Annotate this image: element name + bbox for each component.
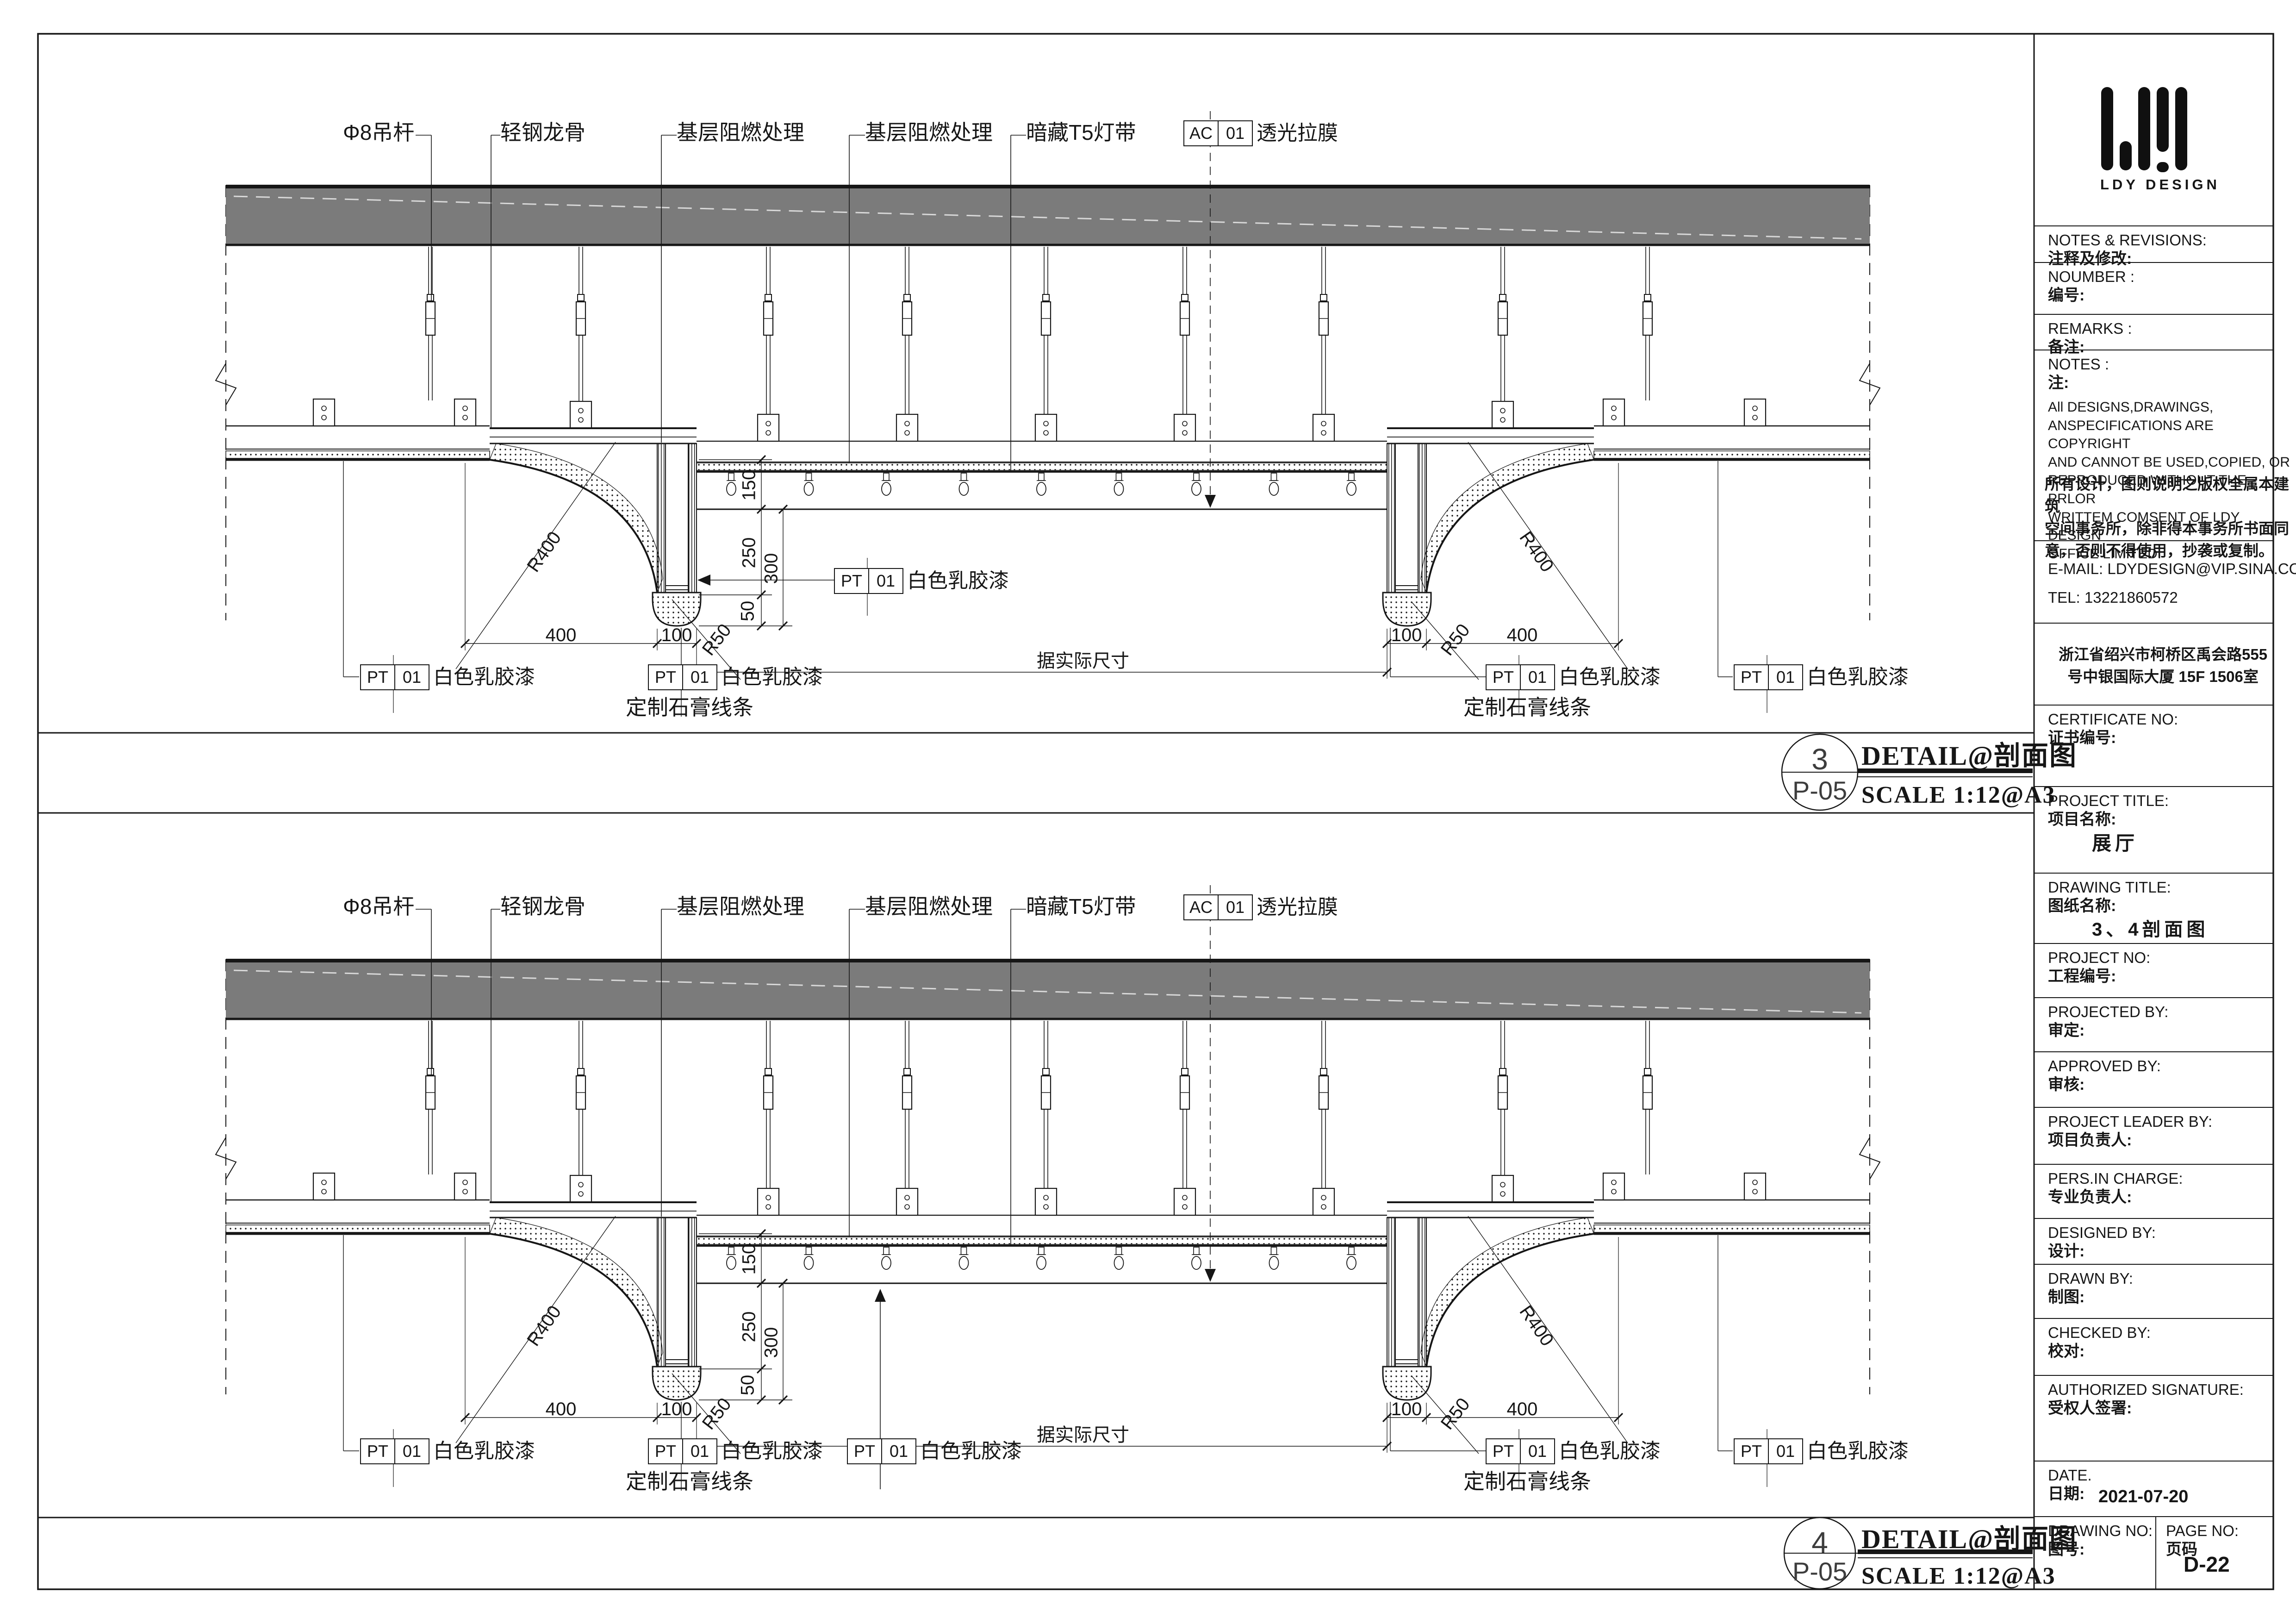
tb-row-15-cn: 制图:: [2048, 1289, 2084, 1305]
tb-row-19-cn: 图号:: [2048, 1542, 2084, 1557]
detail-3-bracket: [758, 414, 779, 441]
detail-3-t5-lamp: [727, 482, 736, 495]
tb-row-12-cn: 项目负责人:: [2048, 1132, 2132, 1148]
detail-4-slab: [226, 959, 1870, 1019]
detail-4-membrane-tag-code: AC: [1183, 894, 1219, 920]
detail-3-baseboard: [226, 451, 490, 458]
detail-4-t5-lamp: [961, 1247, 967, 1255]
detail-3-paint-tag-2-code: PT: [1486, 664, 1521, 690]
detail-4-bulb: [1383, 1367, 1431, 1400]
detail-4-bracket: [1321, 1195, 1326, 1200]
detail-3-dim-400: 400: [1507, 626, 1538, 644]
detail-3-bracket: [1500, 418, 1505, 422]
tb-row-17-en: AUTHORIZED SIGNATURE:: [2048, 1382, 2244, 1397]
detail-4-rod-nut: [578, 1068, 584, 1075]
detail-3-bracket: [1174, 414, 1195, 441]
detail-4-rod-nut: [1644, 1068, 1651, 1075]
detail-3-rod-nut: [1500, 294, 1506, 301]
detail-3-paint-tag-mid-label: 白色乳胶漆: [907, 571, 1009, 591]
detail-3-trough-wall: [1418, 443, 1426, 593]
tb-row-8-cn: 图纸名称:: [2048, 898, 2116, 914]
detail-4-t5-lamp: [728, 1247, 734, 1255]
detail-4-bracket: [896, 1188, 918, 1215]
detail-4-bracket: [1044, 1205, 1048, 1209]
detail-3-trough-wall: [657, 443, 666, 593]
detail-4-bracket: [570, 1175, 591, 1202]
detail-3-bracket: [1603, 399, 1624, 426]
detail-3-t5-lamp: [961, 473, 967, 481]
detail-4-t5-lamp: [884, 1247, 889, 1255]
detail-3-t5-lamp: [1269, 482, 1279, 495]
detail-4-t5-lamp: [806, 1247, 812, 1255]
detail-4-bracket: [579, 1192, 583, 1196]
detail-4-rod-nut: [1043, 1068, 1049, 1075]
detail-3-label-3: 基层阻燃处理: [865, 122, 993, 143]
detail-3-bracket: [570, 401, 591, 428]
detail-4-dim-400: 400: [1507, 1400, 1538, 1418]
tb-row-9-en: PROJECT NO:: [2048, 950, 2150, 965]
detail-3-bracket: [1321, 431, 1326, 435]
detail-3-paint-tag-2-num: 01: [1521, 664, 1555, 690]
detail-3-bracket: [1035, 414, 1057, 441]
detail-3-paint-tag-1-code: PT: [648, 664, 683, 690]
tb-row-11-cn: 审核:: [2048, 1077, 2084, 1093]
detail-4-t5-lamp: [1347, 1256, 1356, 1269]
detail-4-baseboard: [226, 1225, 490, 1232]
detail-3-t5-lamp: [1037, 482, 1046, 495]
detail-3-bracket: [1753, 415, 1757, 420]
detail-3-moulding-label: 定制石膏线条: [626, 697, 753, 718]
detail-4-dim-span-note: 据实际尺寸: [1037, 1426, 1129, 1444]
detail-3-trough-wall: [1387, 443, 1395, 593]
detail-3-label-1: 轻钢龙骨: [500, 122, 585, 143]
tb-row-7-en: PROJECT TITLE:: [2048, 793, 2169, 808]
detail-4-paint-tag-4: PT01: [1734, 1438, 1803, 1464]
tb-row-14-en: DESIGNED BY:: [2048, 1225, 2156, 1240]
tb-row-19-right-en: PAGE NO:: [2166, 1523, 2239, 1538]
detail-3-t5-lamp: [1349, 473, 1354, 481]
detail-4-bracket: [1753, 1189, 1757, 1194]
detail-3-dim-50: 50: [738, 601, 757, 622]
detail-3-bracket: [1182, 421, 1187, 426]
detail-3-bracket: [905, 421, 909, 426]
detail-4-paint-tag-1-label: 白色乳胶漆: [721, 1441, 823, 1462]
detail-4-t5-lamp: [1269, 1256, 1279, 1269]
detail-4-title-number: 4: [1811, 1528, 1828, 1557]
detail-3-bracket: [1744, 399, 1766, 426]
detail-4-paint-tag-2-num: 01: [882, 1438, 916, 1464]
detail-4-bracket: [322, 1180, 326, 1185]
detail-4-trough-wall: [1418, 1218, 1426, 1367]
detail-3-paint-tag-3-label: 白色乳胶漆: [1807, 667, 1909, 687]
detail-4-paint-tag-4-num: 01: [1769, 1438, 1803, 1464]
drawing-sheet: Φ8吊杆轻钢龙骨基层阻燃处理基层阻燃处理暗藏T5灯带AC01透光拉膜PT01白色…: [0, 0, 2296, 1624]
detail-4-bracket: [1603, 1173, 1624, 1200]
detail-4-rod-nut: [1500, 1068, 1506, 1075]
detail-4-bracket: [766, 1205, 771, 1209]
detail-4-bracket: [905, 1205, 909, 1209]
tb-row-2-en: REMARKS :: [2048, 321, 2132, 336]
logo-bar: [2157, 87, 2169, 152]
detail-4-bracket: [1500, 1192, 1505, 1196]
detail-3-t5-lamp: [728, 473, 734, 481]
detail-4-bracket: [1035, 1188, 1057, 1215]
detail-3-bracket: [1044, 421, 1048, 426]
detail-4-trough-wall: [1387, 1218, 1395, 1367]
page-border: [38, 34, 2273, 1589]
detail-4-paint-tag-3-label: 白色乳胶漆: [1559, 1441, 1661, 1462]
logo-bar: [2175, 87, 2187, 170]
detail-3-paint-tag-0: PT01: [360, 664, 429, 690]
detail-4-bracket: [1612, 1189, 1616, 1194]
detail-4-membrane-tag: AC01: [1183, 894, 1253, 920]
detail-3-rod-nut: [427, 294, 434, 301]
detail-3-rod-nut: [1644, 294, 1651, 301]
detail-4-label-4: 暗藏T5灯带: [1026, 896, 1136, 917]
logo-bar: [2157, 162, 2169, 172]
tb-row-10-cn: 审定:: [2048, 1023, 2084, 1038]
detail-3-t5-lamp: [1116, 473, 1122, 481]
detail-3-dim-300: 300: [762, 553, 780, 584]
detail-4-t5-lamp: [1039, 1247, 1044, 1255]
detail-3-t5-lamp: [882, 482, 891, 495]
detail-4-bracket: [1313, 1188, 1334, 1215]
tb-row-19-page-no: D-22: [2184, 1554, 2230, 1575]
detail-3-title-number: 3: [1811, 744, 1828, 774]
detail-4-bracket: [1182, 1205, 1187, 1209]
detail-3-t5-lamp: [1114, 482, 1124, 495]
detail-3-bracket: [766, 421, 771, 426]
detail-4-bracket: [1753, 1180, 1757, 1185]
detail-4-label-2: 基层阻燃处理: [677, 896, 804, 917]
detail-4-t5-lamp: [1116, 1247, 1122, 1255]
tb-row-3-body-cn: 所有设计，图则说明之版权全属本建筑 空间事务所，除非得本事务所书面同 意，否则不…: [2045, 473, 2296, 562]
tb-row-8-value: 3、4剖面图: [2092, 920, 2209, 939]
tb-row-19-en: DRAWING NO:: [2048, 1523, 2153, 1538]
cad-linework: [0, 0, 2296, 1624]
detail-3-centre-board: [697, 463, 1387, 470]
detail-4-t5-lamp: [1194, 1247, 1199, 1255]
detail-3-t5-lamp: [959, 482, 969, 495]
detail-4-moulding-label: 定制石膏线条: [1463, 1471, 1591, 1492]
detail-4-paint-tag-0-num: 01: [395, 1438, 429, 1464]
tb-row-16-en: CHECKED BY:: [2048, 1325, 2151, 1340]
tb-row-1-cn: 编号:: [2048, 287, 2084, 303]
detail-4-paint-tag-0-code: PT: [360, 1438, 395, 1464]
detail-4-title-text: DETAIL@剖面图: [1861, 1526, 2077, 1553]
tb-row-7-value: 展厅: [2092, 834, 2138, 853]
detail-4-baseboard: [1594, 1225, 1870, 1232]
detail-4-bracket: [1044, 1195, 1048, 1200]
detail-4-bracket: [463, 1180, 467, 1185]
logo-bar: [2101, 87, 2113, 170]
detail-4-cove-hatch: [490, 1218, 663, 1367]
detail-4-t5-lamp: [1192, 1256, 1201, 1269]
detail-3-bracket: [322, 406, 326, 411]
detail-3-bracket: [1044, 431, 1048, 435]
detail-3-rod-nut: [578, 294, 584, 301]
detail-3-bracket: [454, 399, 476, 426]
detail-3-title-scale: SCALE 1:12@A3: [1861, 783, 2056, 807]
detail-4-bracket: [1492, 1175, 1513, 1202]
detail-3-membrane-tag: AC01: [1183, 120, 1253, 146]
detail-4-bracket: [1182, 1195, 1187, 1200]
detail-4-label-0: Φ8吊杆: [343, 896, 414, 917]
detail-3-rod-nut: [1320, 294, 1327, 301]
detail-3-t5-lamp: [1271, 473, 1277, 481]
tb-row-17-cn: 受权人签署:: [2048, 1400, 2132, 1416]
detail-3-label-0: Φ8吊杆: [343, 122, 414, 143]
detail-3-t5-lamp: [1192, 482, 1201, 495]
detail-3-bracket: [1500, 408, 1505, 413]
detail-3-paint-tag-0-code: PT: [360, 664, 395, 690]
detail-4-t5-lamp: [727, 1256, 736, 1269]
detail-3-dim-150: 150: [740, 470, 758, 501]
tb-row-1-en: NOUMBER :: [2048, 269, 2134, 284]
detail-3-bracket: [463, 415, 467, 420]
detail-3-bracket: [905, 431, 909, 435]
detail-4-bracket: [905, 1195, 909, 1200]
detail-3-cove-hatch: [1421, 443, 1594, 593]
detail-3-paint-tag-2-label: 白色乳胶漆: [1559, 667, 1661, 687]
tb-row-7-cn: 项目名称:: [2048, 812, 2116, 827]
detail-3-bulb: [1383, 593, 1431, 626]
detail-4-bracket: [454, 1173, 476, 1200]
tb-row-4-email: E-MAIL: LDYDESIGN@VIP.SINA.COM: [2048, 561, 2296, 576]
detail-3-rod-nut: [1043, 294, 1049, 301]
detail-4-title-scale: SCALE 1:12@A3: [1861, 1564, 2056, 1588]
detail-3-paint-tag-mid: PT01: [834, 568, 903, 594]
detail-4-paint-tag-0-label: 白色乳胶漆: [433, 1441, 535, 1462]
detail-4-bracket: [1321, 1205, 1326, 1209]
detail-3-moulding-label: 定制石膏线条: [1463, 697, 1591, 718]
detail-3-bracket: [1182, 431, 1187, 435]
detail-4-rod-nut: [1182, 1068, 1188, 1075]
detail-4-paint-tag-4-label: 白色乳胶漆: [1807, 1441, 1909, 1462]
detail-4-membrane-tag-num: 01: [1219, 894, 1253, 920]
detail-3-bracket: [579, 418, 583, 422]
detail-4-t5-lamp: [1271, 1247, 1277, 1255]
detail-3-rod-nut: [1182, 294, 1188, 301]
detail-4-bracket: [1744, 1173, 1766, 1200]
detail-3-title-text: DETAIL@剖面图: [1861, 743, 2077, 769]
detail-3-paint-tag-mid-num: 01: [869, 568, 903, 594]
detail-4-t5-lamp: [1037, 1256, 1046, 1269]
detail-3-bracket: [1313, 414, 1334, 441]
tb-row-10-en: PROJECTED BY:: [2048, 1004, 2168, 1019]
detail-3-paint-tag-3: PT01: [1734, 664, 1803, 690]
detail-4-dim-250: 250: [740, 1312, 758, 1343]
tb-row-6-cn: 证书编号:: [2048, 730, 2116, 746]
detail-3-membrane-tag-num: 01: [1219, 120, 1253, 146]
detail-3-slab: [226, 185, 1870, 245]
detail-4-paint-tag-1-num: 01: [683, 1438, 717, 1464]
detail-4-bracket: [766, 1195, 771, 1200]
detail-4-paint-tag-2-code: PT: [847, 1438, 882, 1464]
detail-4-dim-150: 150: [740, 1244, 758, 1275]
detail-3-paint-tag-0-num: 01: [395, 664, 429, 690]
detail-4-bracket: [322, 1189, 326, 1194]
detail-3-t5-lamp: [1194, 473, 1199, 481]
tb-row-4-tel: TEL: 13221860572: [2048, 590, 2178, 605]
detail-3-cove-hatch: [490, 443, 663, 593]
detail-4-centre-board: [697, 1237, 1387, 1244]
logo-bar: [2120, 141, 2132, 170]
tb-row-13-cn: 专业负责人:: [2048, 1189, 2132, 1205]
tb-row-9-cn: 工程编号:: [2048, 968, 2116, 984]
detail-4-paint-tag-3: PT01: [1486, 1438, 1555, 1464]
detail-3-trough-wall: [688, 443, 697, 593]
tb-row-5-address: 浙江省绍兴市柯桥区禹会路555 号中银国际大厦 15F 1506室: [2059, 643, 2267, 688]
detail-4-bracket: [1500, 1182, 1505, 1187]
detail-4-cove-hatch: [1421, 1218, 1594, 1367]
tb-row-13-en: PERS.IN CHARGE:: [2048, 1171, 2183, 1186]
detail-3-t5-lamp: [1039, 473, 1044, 481]
detail-4-paint-tag-2: PT01: [847, 1438, 916, 1464]
detail-4-bracket: [758, 1188, 779, 1215]
tb-row-0-cn: 注释及修改:: [2048, 251, 2132, 267]
tb-row-12-en: PROJECT LEADER BY:: [2048, 1114, 2212, 1129]
detail-3-paint-tag-1-label: 白色乳胶漆: [721, 667, 823, 687]
tb-row-3-en: NOTES :: [2048, 356, 2109, 372]
tb-row-6-en: CERTIFICATE NO:: [2048, 712, 2178, 727]
detail-3-paint-tag-0-label: 白色乳胶漆: [433, 667, 535, 687]
detail-4-title-ref: P-05: [1792, 1559, 1847, 1585]
detail-3-dim-250: 250: [740, 537, 758, 568]
detail-4-paint-tag-2-label: 白色乳胶漆: [920, 1441, 1022, 1462]
detail-4-dim-50: 50: [738, 1375, 757, 1396]
detail-4-bracket: [1612, 1180, 1616, 1185]
detail-3-bracket: [1612, 415, 1616, 420]
logo-bar: [2138, 87, 2150, 170]
detail-4-t5-lamp: [882, 1256, 891, 1269]
detail-4-t5-lamp: [804, 1256, 814, 1269]
detail-3-paint-tag-mid-code: PT: [834, 568, 869, 594]
detail-4-paint-tag-3-num: 01: [1521, 1438, 1555, 1464]
tb-row-14-cn: 设计:: [2048, 1243, 2084, 1259]
detail-4-paint-tag-1: PT01: [648, 1438, 717, 1464]
detail-3-paint-tag-1: PT01: [648, 664, 717, 690]
detail-4-t5-lamp: [959, 1256, 969, 1269]
detail-3-rod-nut: [904, 294, 910, 301]
detail-3-pt-arrow: [697, 575, 710, 586]
detail-3-t5-lamp: [804, 482, 814, 495]
detail-3-membrane-tag-code: AC: [1183, 120, 1219, 146]
tb-row-18-cn: 日期:: [2048, 1486, 2084, 1502]
detail-4-rod-nut: [427, 1068, 434, 1075]
detail-4-bulb: [653, 1367, 701, 1400]
tb-row-3-cn: 注:: [2048, 375, 2069, 391]
detail-4-t5-lamp: [1114, 1256, 1124, 1269]
detail-4-bracket: [579, 1182, 583, 1187]
detail-3-dim-span-note: 据实际尺寸: [1037, 652, 1129, 670]
detail-3-title-ref: P-05: [1792, 778, 1847, 804]
detail-3-bracket: [579, 408, 583, 413]
detail-4-rod-nut: [1320, 1068, 1327, 1075]
detail-4-dim-100: 100: [661, 1400, 692, 1418]
detail-3-baseboard: [1594, 451, 1870, 458]
detail-3-paint-tag-3-num: 01: [1769, 664, 1803, 690]
detail-4-bracket: [1174, 1188, 1195, 1215]
detail-4-dim-100: 100: [1391, 1400, 1422, 1418]
detail-4-paint-tag-1-code: PT: [648, 1438, 683, 1464]
detail-3-label-4: 暗藏T5灯带: [1026, 122, 1136, 143]
detail-4-membrane-arrow: [1205, 1269, 1216, 1282]
tb-row-16-cn: 校对:: [2048, 1343, 2084, 1359]
detail-3-t5-lamp: [806, 473, 812, 481]
detail-3-label-2: 基层阻燃处理: [677, 122, 804, 143]
tb-row-18-value: 2021-07-20: [2098, 1488, 2188, 1505]
detail-3-dim-100: 100: [1391, 626, 1422, 644]
detail-3-bulb: [653, 593, 701, 626]
detail-4-label-1: 轻钢龙骨: [500, 896, 585, 917]
logo-text: LDY DESIGN: [2100, 177, 2220, 192]
detail-4-pt-arrow: [875, 1289, 886, 1302]
tb-row-2-cn: 备注:: [2048, 339, 2084, 355]
detail-4-paint-tag-3-code: PT: [1486, 1438, 1521, 1464]
detail-4-dim-300: 300: [762, 1327, 780, 1358]
detail-3-t5-lamp: [1347, 482, 1356, 495]
tb-row-0-en: NOTES & REVISIONS:: [2048, 232, 2207, 248]
detail-4-paint-tag-0: PT01: [360, 1438, 429, 1464]
detail-3-bracket: [1321, 421, 1326, 426]
detail-3-paint-tag-2: PT01: [1486, 664, 1555, 690]
detail-3-bracket: [766, 431, 771, 435]
detail-3-rod-nut: [765, 294, 772, 301]
detail-3-bracket: [463, 406, 467, 411]
detail-4-rod-nut: [765, 1068, 772, 1075]
detail-3-bracket: [322, 415, 326, 420]
detail-4-label-3: 基层阻燃处理: [865, 896, 993, 917]
detail-4-trough-wall: [657, 1218, 666, 1367]
tb-row-11-en: APPROVED BY:: [2048, 1058, 2161, 1074]
detail-4-paint-tag-4-code: PT: [1734, 1438, 1769, 1464]
detail-4-membrane-tag-label: 透光拉膜: [1257, 897, 1338, 918]
tb-row-15-en: DRAWN BY:: [2048, 1271, 2133, 1286]
detail-3-membrane-arrow: [1205, 495, 1216, 508]
detail-3-bracket: [1612, 406, 1616, 411]
detail-4-dim-400: 400: [546, 1400, 577, 1418]
detail-3-bracket: [896, 414, 918, 441]
detail-3-membrane-tag-label: 透光拉膜: [1257, 123, 1338, 144]
detail-3-bracket: [313, 399, 335, 426]
detail-4-rod-nut: [904, 1068, 910, 1075]
tb-row-8-en: DRAWING TITLE:: [2048, 880, 2171, 895]
detail-4-moulding-label: 定制石膏线条: [626, 1471, 753, 1492]
detail-3-dim-400: 400: [546, 626, 577, 644]
detail-4-bracket: [463, 1189, 467, 1194]
detail-3-dim-100: 100: [661, 626, 692, 644]
detail-3-paint-tag-1-num: 01: [683, 664, 717, 690]
detail-3-bracket: [1492, 401, 1513, 428]
detail-4-bracket: [313, 1173, 335, 1200]
detail-4-t5-lamp: [1349, 1247, 1354, 1255]
tb-row-18-en: DATE.: [2048, 1468, 2092, 1483]
detail-4-trough-wall: [688, 1218, 697, 1367]
detail-3-t5-lamp: [884, 473, 889, 481]
detail-3-bracket: [1753, 406, 1757, 411]
detail-3-paint-tag-3-code: PT: [1734, 664, 1769, 690]
